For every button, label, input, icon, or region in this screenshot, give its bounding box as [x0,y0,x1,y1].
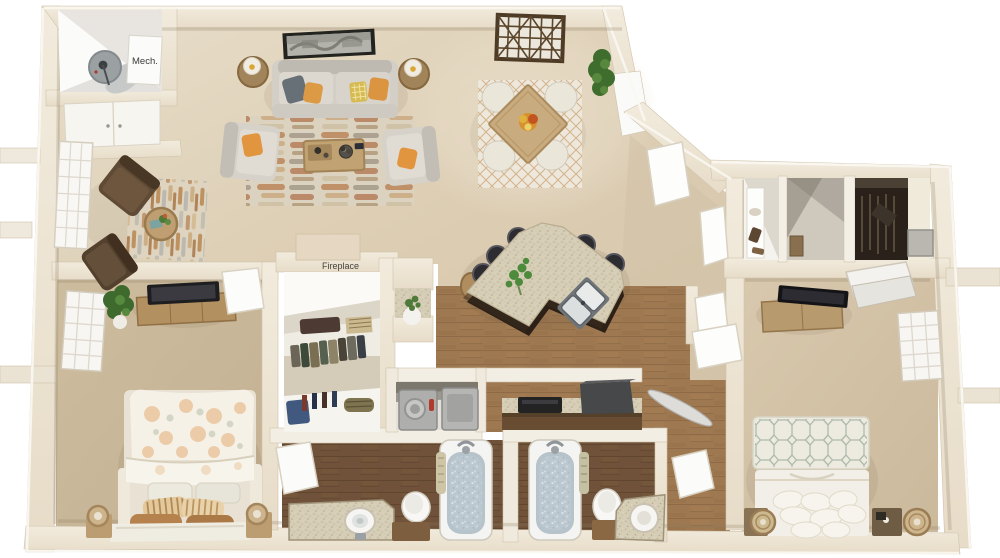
svg-text:Fireplace: Fireplace [322,261,359,271]
svg-text:Mech.: Mech. [132,56,158,67]
